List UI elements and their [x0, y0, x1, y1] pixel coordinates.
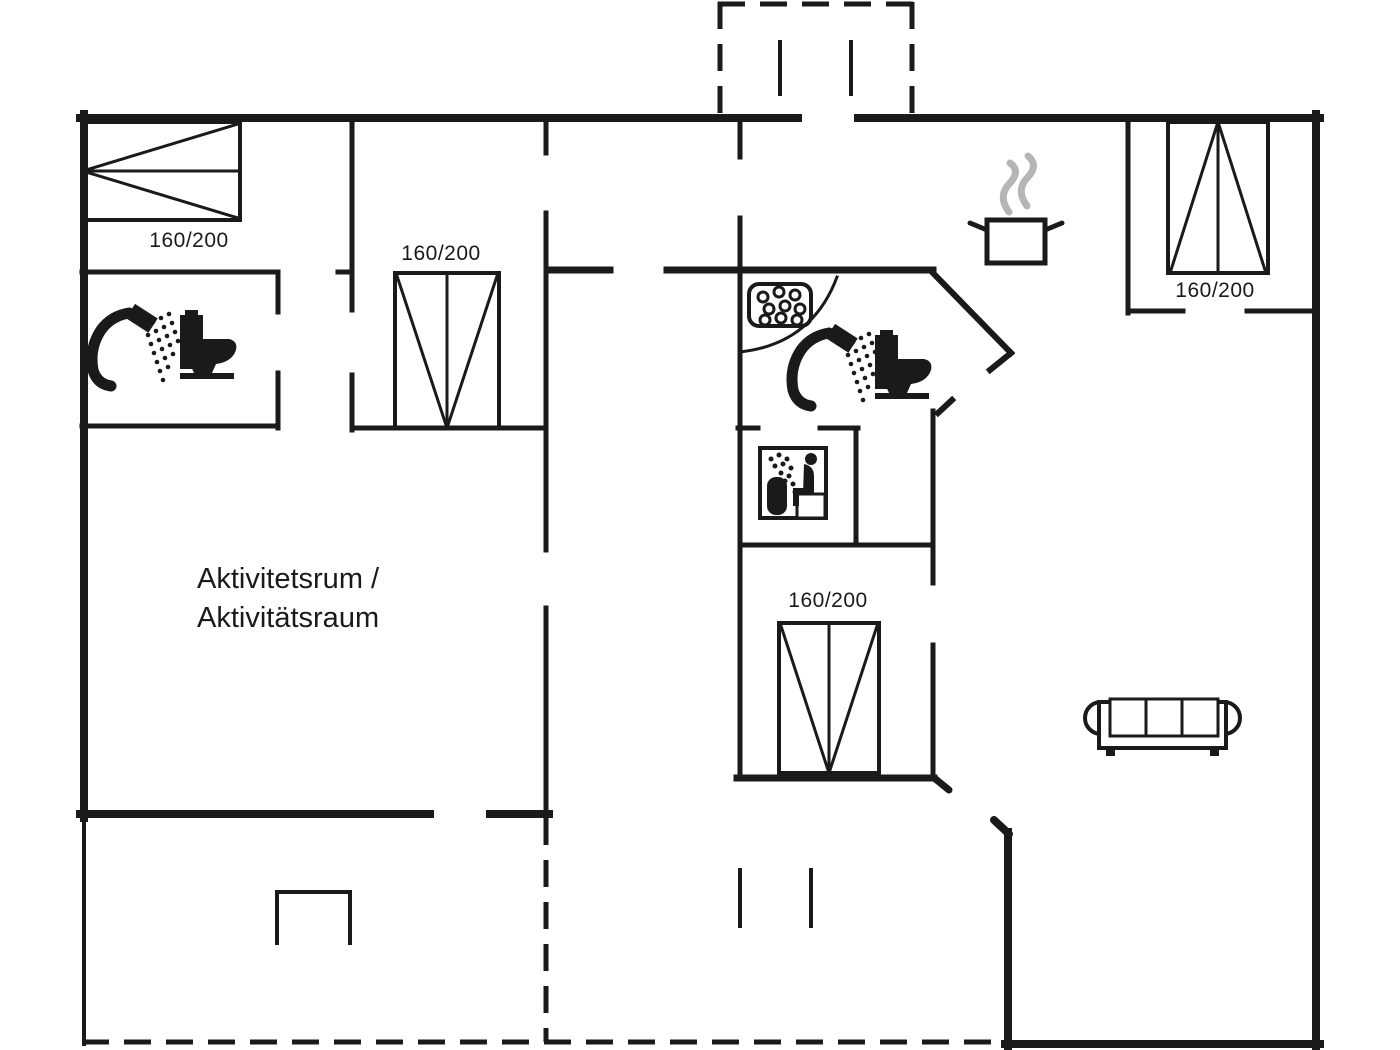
double-bed-icon-top-left: [84, 122, 240, 220]
terrace-niche: [277, 892, 350, 943]
steam-icon: [1003, 156, 1033, 212]
sofa-icon: [1085, 699, 1240, 756]
bed-size-label-middle: 160/200: [361, 242, 521, 266]
bed-size-label-bottom-middle: 160/200: [748, 589, 908, 613]
floor-plan: 160/200 160/200 160/200 160/200 Aktivite…: [0, 0, 1400, 1050]
floor-plan-drawing: [0, 0, 1400, 1050]
porch-outline: [718, 2, 914, 114]
double-bed-icon-bottom-middle: [779, 623, 879, 773]
cooking-pot-icon: [970, 156, 1062, 263]
toilet-icon: [180, 310, 236, 379]
room-label-line1: Aktivitetsrum /: [197, 560, 379, 599]
room-label-line2: Aktivitätsraum: [197, 599, 379, 638]
double-bed-icon-top-right: [1168, 122, 1268, 273]
bed-size-label-top-right: 160/200: [1135, 279, 1295, 303]
double-bed-icon-middle: [395, 273, 499, 428]
shower-icon-2: [792, 324, 880, 406]
sauna-icon: [760, 448, 826, 518]
room-label-activity-room: Aktivitetsrum / Aktivitätsraum: [197, 560, 379, 638]
shower-tray-icon: [749, 284, 811, 326]
bed-size-label-top-left: 160/200: [109, 229, 269, 253]
terrace-outline: [82, 818, 1006, 1044]
shower-icon: [92, 304, 180, 386]
toilet-icon-2: [875, 330, 931, 399]
